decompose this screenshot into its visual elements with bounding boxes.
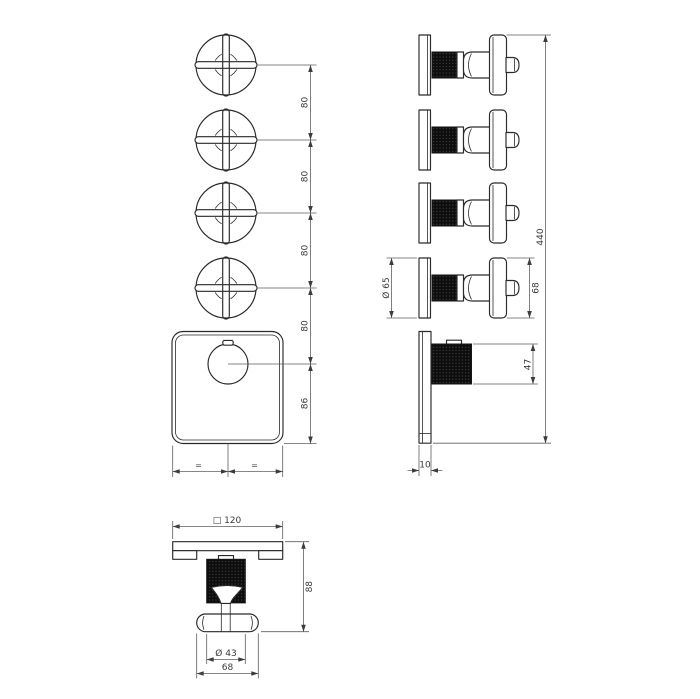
dim-10: 10 [419, 461, 431, 471]
dim-knob-offset: 86 [301, 398, 311, 410]
dim-spacing-4: 80 [301, 320, 311, 332]
front-handle-4 [195, 257, 257, 319]
dim-equal-left: = [195, 461, 202, 470]
dim-knob-height: 47 [473, 344, 538, 384]
side-handle-1 [419, 35, 519, 95]
dim-47: 47 [524, 359, 534, 370]
dim-spacing-3: 80 [301, 245, 311, 257]
side-handle-3 [419, 183, 519, 243]
dim-plate-square: □ 120 [173, 516, 283, 539]
dim-plate-diameter: Ø 65 [381, 258, 417, 318]
side-handle-2 [419, 110, 519, 170]
dim-spacing-1: 80 [301, 97, 311, 109]
dim-equal-right: = [251, 461, 258, 470]
front-wall-plate [172, 332, 283, 444]
dim-plate-thickness: 10 [408, 445, 443, 476]
side-thermostat-knob [432, 340, 472, 384]
side-wall-plate [419, 332, 431, 444]
dim-dia65: Ø 65 [381, 277, 392, 298]
dim-dia43: Ø 43 [215, 648, 236, 659]
front-handle-2 [195, 109, 257, 171]
dim-knob-diameter: Ø 43 [207, 634, 246, 664]
dim-88: 88 [305, 581, 315, 593]
mixer-technical-drawing: 80 80 80 80 86 = = [0, 0, 700, 699]
front-view [172, 34, 283, 444]
side-view [419, 35, 519, 443]
front-handle-3 [195, 182, 257, 244]
dim-68-side: 68 [532, 282, 542, 294]
bottom-handle [197, 556, 259, 632]
dim-68-bottom: 68 [222, 663, 234, 673]
side-handle-4 [419, 258, 519, 318]
technical-drawing-page: 80 80 80 80 86 = = [0, 0, 700, 699]
dim-sq120: □ 120 [213, 516, 242, 526]
front-handle-1 [195, 34, 257, 96]
front-equal-dimension: = = [173, 444, 283, 478]
front-dimension-chain: 80 80 80 80 86 [228, 65, 317, 444]
bottom-view [173, 542, 283, 632]
dim-440: 440 [536, 228, 546, 245]
dim-spacing-2: 80 [301, 171, 311, 183]
